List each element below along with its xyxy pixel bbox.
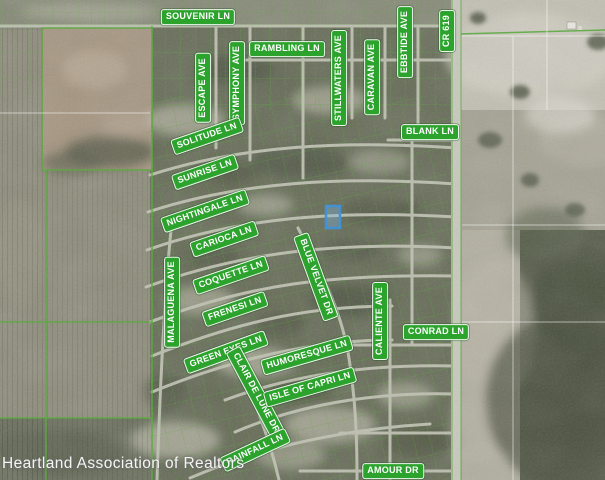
street-label-malaguena: MALAGUENA AVE [164,256,180,347]
street-label-escape: ESCAPE AVE [195,53,211,123]
street-label-rambling: RAMBLING LN [249,41,325,57]
aerial-map[interactable]: SOUVENIR LN RAMBLING LN ESCAPE AVE SYMPH… [0,0,605,480]
street-label-conrad: CONRAD LN [403,324,469,340]
street-label-souvenir: SOUVENIR LN [161,9,235,25]
street-label-ebbtide: EBBTIDE AVE [397,6,413,78]
street-label-cr619: CR 619 [439,10,455,52]
street-label-caravan: CARAVAN AVE [364,39,380,115]
street-label-blank: BLANK LN [401,124,459,140]
street-label-stillwaters: STILLWATERS AVE [331,30,347,126]
street-label-symphony: SYMPHONY AVE [229,41,245,125]
watermark: Heartland Association of Realtors [2,455,244,473]
street-label-caliente: CALIENTE AVE [372,282,388,360]
street-label-amour: AMOUR DR [362,463,424,479]
